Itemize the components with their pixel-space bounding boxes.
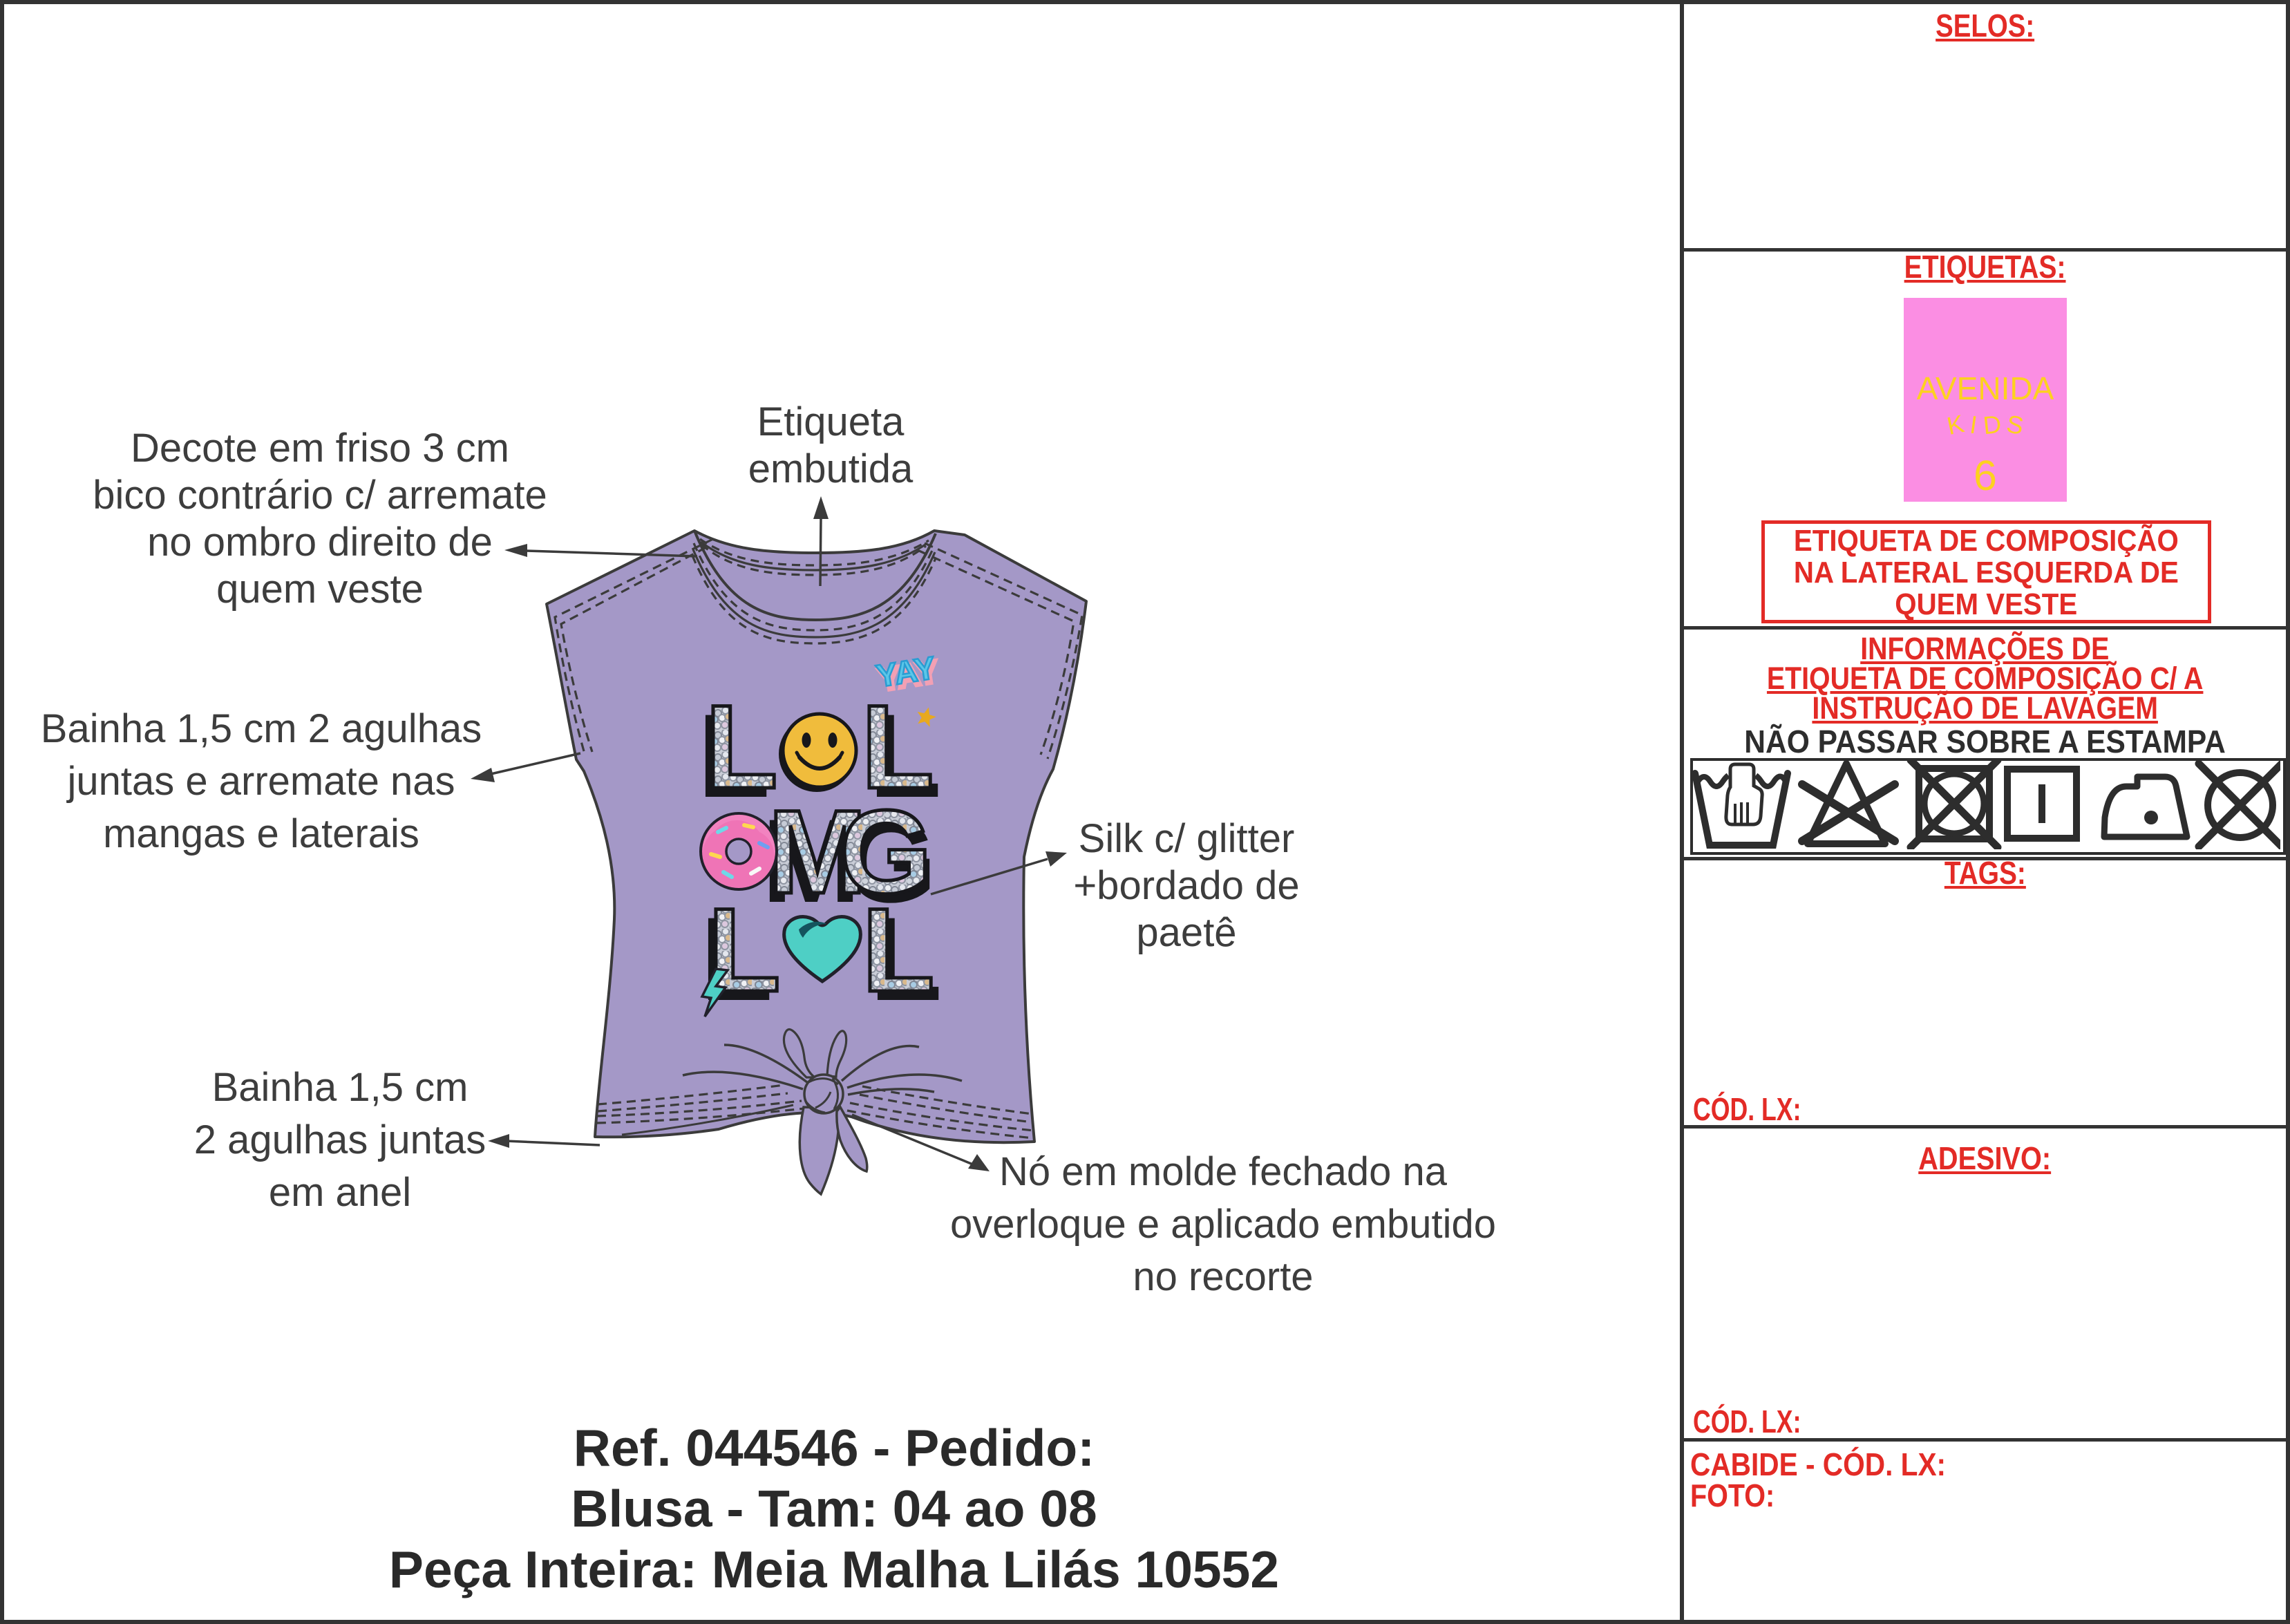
svg-text:L: L	[705, 681, 777, 813]
svg-text:L: L	[862, 884, 934, 1017]
